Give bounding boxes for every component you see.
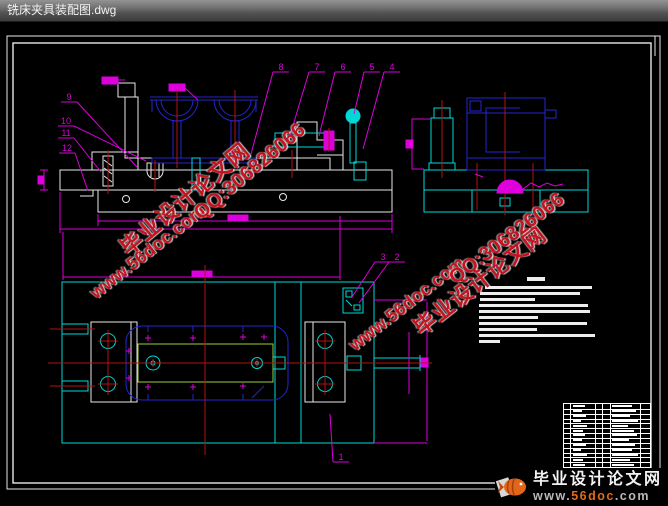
callout-number: 5 [369,62,374,72]
table-cell-text [612,430,634,432]
table-cell-text [612,425,628,427]
table-cell-text [573,430,583,432]
plan-view-marks [126,300,428,443]
callout-number: 4 [389,62,394,72]
table-cell-text [612,415,630,417]
table-cell-text [612,405,632,407]
side-view-centerlines [442,92,533,215]
callout-number: 10 [61,116,71,126]
logo-site-name: 毕业设计论文网 [533,471,663,489]
side-view-base [424,108,588,212]
table-cell-text [573,434,585,436]
table-cell-text [573,405,585,407]
callout-number: 9 [66,92,71,102]
table-cell-text [612,410,636,412]
callout-number: 11 [61,128,70,138]
table-cell-text [573,459,583,461]
callout-leader [363,72,384,149]
site-logo: 毕业设计论文网 www.56doc.com [495,468,668,506]
table-cell-text [612,434,637,436]
front-view-clamp-parts [192,109,366,190]
callout-leader [75,153,88,191]
table-cell-text [612,454,638,456]
table-cell-text [612,439,629,441]
callout-leader [354,72,364,114]
window-titlebar: 铣床夹具装配图.dwg [0,0,668,22]
table-cell-text [573,444,586,446]
plan-view [48,265,432,455]
table-cell-text [573,420,581,422]
side-view-workpiece [467,98,556,170]
table-cell-text [573,415,586,417]
callout-number: 6 [340,62,345,72]
table-cell-text [573,449,581,451]
callout-number: 1 [338,452,343,462]
callout-number: 7 [314,62,319,72]
window-title: 铣床夹具装配图.dwg [0,0,668,21]
callout-number: 8 [278,62,283,72]
front-view-centerlines [108,90,329,194]
table-cell-text [573,439,582,441]
callout-leader [77,102,137,167]
callout-leader [319,72,335,136]
table-cell-text [573,410,582,412]
table-cell-text [573,464,585,466]
table-cell-text [612,444,635,446]
parts-list-table [563,403,651,471]
table-cell-text [612,459,630,461]
side-view [406,92,588,215]
callout-leader [251,72,273,154]
table-cell-text [612,420,638,422]
callout-leader [330,414,333,462]
callout-leader [74,138,101,172]
plan-view-jaws [91,322,345,402]
callout-number: 3 [380,252,385,262]
table-cell-text [573,454,587,456]
side-view-dimensions [406,119,563,193]
logo-site-url: www.56doc.com [533,489,663,503]
front-view [38,77,392,280]
front-view-workpiece [150,97,258,163]
cad-app-window: 铣床夹具装配图.dwg [0,0,668,506]
fish-logo-icon [495,470,529,504]
table-cell-text [612,449,632,451]
table-cell-text [573,425,587,427]
table-cell-text [612,464,634,466]
callout-number: 12 [62,143,72,153]
front-view-fixture-body [60,83,392,212]
callout-number: 2 [394,252,399,262]
